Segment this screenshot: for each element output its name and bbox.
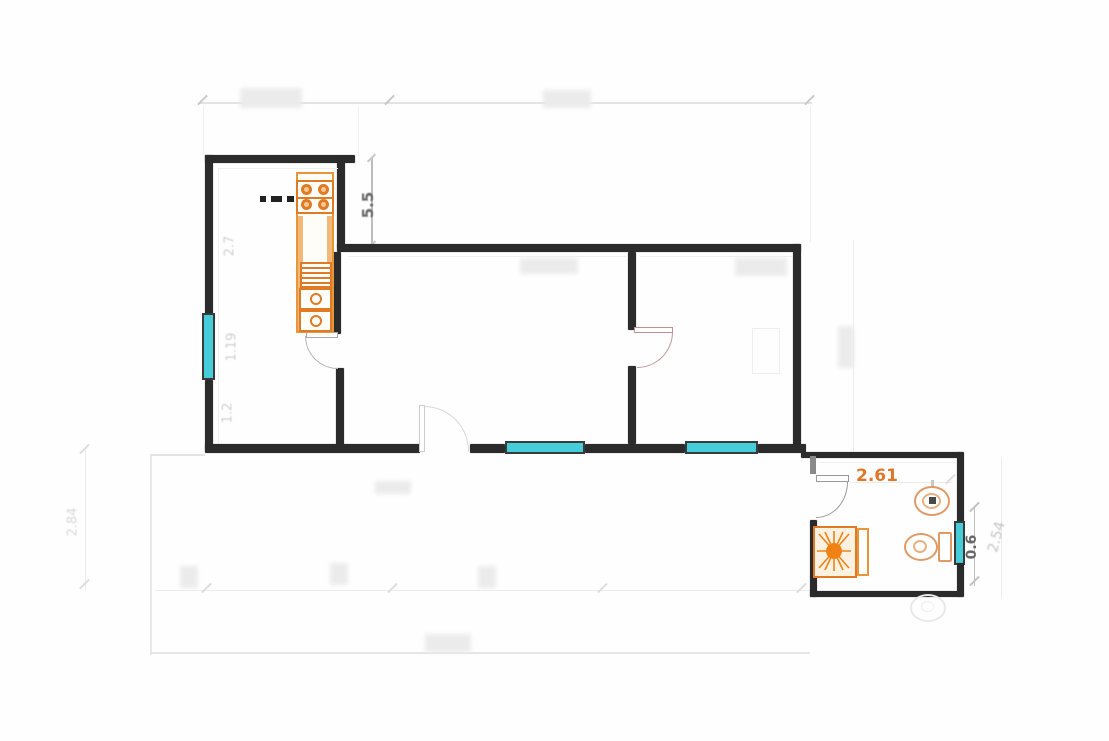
faded-dimension-text — [240, 88, 302, 108]
washbasin-inner — [921, 601, 934, 612]
kitchen-right-wall-mid — [333, 252, 341, 334]
kitchen-inner-face-left — [218, 168, 219, 444]
toilet-tank — [938, 532, 952, 562]
terrace-dim-line — [155, 590, 810, 591]
bathroom-height-label: 2.54 — [985, 520, 1009, 554]
living-inner-face — [640, 256, 792, 257]
bottom-wall-seg3 — [585, 444, 685, 453]
dim-tick — [387, 583, 398, 594]
kitchen-right-wall-lower — [336, 368, 344, 452]
bidet — [914, 484, 952, 518]
faded-dimension-text — [838, 326, 854, 368]
kitchen-top-wall — [205, 155, 355, 163]
living-window-left — [505, 441, 585, 454]
faded-room-text — [520, 258, 578, 274]
kitchen-door-arc — [305, 336, 338, 369]
entrance-door-arc — [424, 406, 469, 451]
shower-sunburst-icon — [815, 528, 854, 575]
living-window-right — [685, 441, 758, 454]
kitchen-inner-face-top — [218, 168, 338, 169]
kitchen-left-wall-upper — [205, 155, 213, 315]
stove — [296, 180, 334, 214]
dim-tick — [796, 583, 807, 594]
stove-burner — [301, 184, 312, 195]
kitchen-window — [202, 313, 215, 380]
bathroom-window-width-label: 0.6 — [964, 535, 980, 560]
faded-dimension-text — [425, 634, 471, 652]
dim-tick — [201, 583, 212, 594]
kitchen-left-wall-lower — [205, 380, 213, 452]
shower — [813, 526, 869, 578]
kitchen-lower-width-label: 1.2 — [221, 403, 236, 424]
left-height-label: 2.84 — [66, 508, 81, 537]
dim-extension-line — [203, 106, 204, 154]
dim-extension-line — [358, 106, 359, 156]
faded-dimension-text — [375, 481, 411, 494]
faded-room-text — [735, 258, 787, 276]
bathroom-right-wall-upper — [957, 452, 964, 523]
bathroom-door-jamb — [810, 456, 816, 474]
washbasin-faded — [910, 594, 946, 622]
bathroom-door-arc — [816, 482, 848, 518]
sink-lower — [299, 310, 332, 332]
floor-plan: 5.5 2.7 1.19 1.2 — [0, 0, 1109, 741]
living-inner-face — [348, 256, 626, 257]
shower-tray — [813, 526, 857, 578]
interior-wall-upper — [628, 252, 636, 330]
terrace-left-edge — [150, 455, 152, 655]
faded-dimension-text — [330, 563, 348, 585]
kitchen-height-dim-label: 5.5 — [359, 192, 377, 219]
dish-rack — [300, 262, 332, 288]
bidet-drain — [929, 497, 936, 504]
sink-basin — [310, 293, 322, 305]
shower-panel — [857, 528, 869, 576]
faded-dimension-text — [180, 566, 198, 588]
dim-tick — [384, 95, 395, 106]
sink-upper — [299, 288, 332, 310]
bedroom-door-arc — [637, 332, 673, 368]
bathroom-top-wall — [801, 452, 963, 458]
bathroom-door-leaf — [816, 475, 849, 482]
closet-outline — [752, 328, 780, 374]
stove-divider — [298, 197, 332, 199]
dim-tick — [804, 95, 815, 106]
terrace-top-edge — [150, 454, 205, 456]
faucet-marks — [260, 196, 294, 202]
bottom-wall-seg4 — [758, 444, 806, 453]
kitchen-right-wall-upper — [337, 158, 345, 248]
main-right-wall — [793, 244, 801, 452]
living-top-wall — [337, 244, 801, 252]
bottom-wall-seg2 — [470, 444, 505, 453]
terrace-bottom-edge — [150, 652, 810, 654]
dim-tick — [197, 95, 208, 106]
toilet-bowl-inner — [913, 540, 927, 553]
interior-wall-lower — [628, 366, 636, 444]
kitchen-window-width-label: 1.19 — [225, 333, 240, 362]
stove-burner — [318, 199, 329, 210]
bathroom-width-label: 2.61 — [856, 466, 898, 486]
stove-burner — [318, 184, 329, 195]
stove-burner — [301, 199, 312, 210]
dim-tick — [597, 583, 608, 594]
bathroom-right-wall-lower — [957, 563, 964, 597]
bottom-wall-seg1 — [205, 444, 420, 453]
left-dim-line — [85, 450, 86, 590]
faded-dimension-text — [543, 90, 591, 108]
sink-basin — [310, 315, 322, 327]
kitchen-upper-width-label: 2.7 — [223, 236, 238, 257]
bathroom-inner-face — [818, 462, 957, 463]
dim-extension-line — [810, 106, 811, 242]
toilet — [904, 530, 956, 564]
faded-dimension-text — [478, 566, 496, 588]
